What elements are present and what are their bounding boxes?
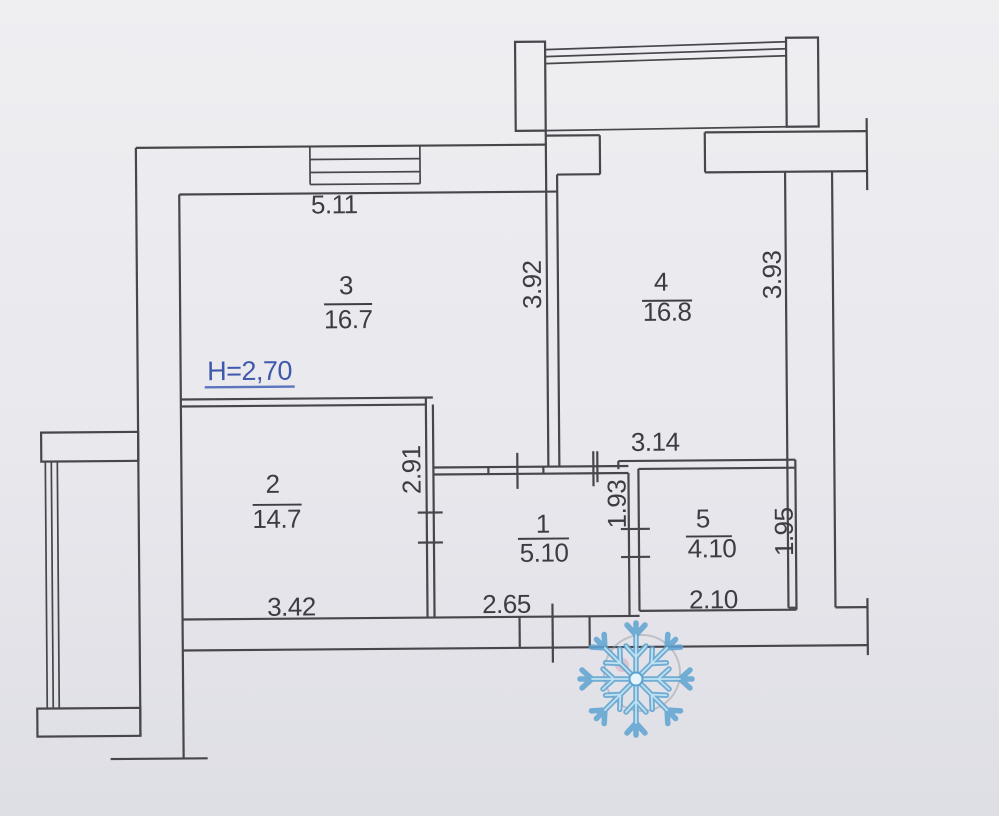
dim-room2-depth: 2.91 [396, 445, 426, 494]
dim-room5-depth: 1.95 [769, 507, 799, 556]
room-2-number: 2 [265, 469, 279, 499]
paper-background [0, 0, 999, 816]
dim-room5-width: 2.10 [689, 584, 738, 614]
room-5-area: 4.10 [688, 533, 737, 563]
room-1-area: 5.10 [520, 537, 569, 567]
room-4-area: 16.8 [643, 296, 692, 326]
snowflake-watermark [580, 623, 692, 735]
floor-plan-drawing: 3 16.7 4 16.8 2 14.7 1 5.10 5 4.10 5.11 … [0, 0, 999, 816]
dim-room4-depth: 3.93 [757, 250, 787, 299]
floor-plan-scan: 3 16.7 4 16.8 2 14.7 1 5.10 5 4.10 5.11 … [0, 0, 999, 816]
dim-hall-width: 2.65 [482, 589, 531, 619]
room-5-number: 5 [696, 503, 710, 533]
dim-corridor-width: 3.14 [631, 427, 680, 457]
room-2-area: 14.7 [252, 504, 301, 534]
height-note-text: H=2,70 [207, 356, 292, 387]
dim-room2-width: 3.42 [267, 591, 316, 621]
room-4-number: 4 [654, 267, 668, 297]
height-note-underline [205, 387, 295, 388]
snowflake-center [630, 673, 643, 686]
dim-room3-depth: 3.92 [517, 260, 547, 309]
dim-hall-depth: 1.93 [601, 480, 631, 529]
room-3-area: 16.7 [324, 304, 373, 334]
dim-room3-width: 5.11 [311, 189, 358, 219]
ceiling-height-note: H=2,70 [204, 356, 294, 388]
room-3-number: 3 [339, 270, 353, 300]
room-1-number: 1 [536, 509, 550, 539]
